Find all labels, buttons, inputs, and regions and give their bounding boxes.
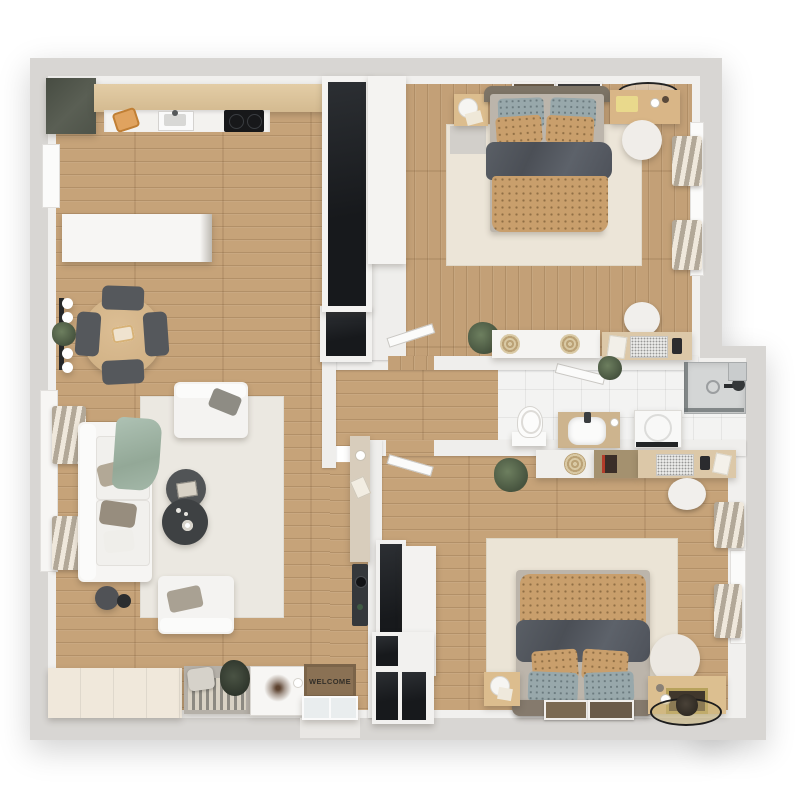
bedroom2-red-book [602, 455, 617, 473]
intercom-led [357, 604, 363, 610]
toilet-seat [521, 410, 541, 434]
bath-faucet [584, 412, 591, 423]
entry-art-splatter [264, 674, 292, 702]
bedroom1-jute-decor-1 [500, 334, 520, 354]
wall-plant [52, 322, 76, 346]
washer-drum [644, 414, 672, 442]
bedroom2-card [497, 687, 513, 701]
radiator-right-2 [672, 220, 702, 270]
dining-chair-left [74, 311, 101, 357]
bedroom1-jute-decor-2 [560, 334, 580, 354]
bed1-blanket [492, 176, 608, 232]
entry-art-dot [293, 678, 303, 688]
tv-sideboard [62, 214, 212, 262]
coffee-table-dot-1 [176, 508, 181, 513]
vanity-tray [616, 96, 638, 112]
bedroom1-laptop [630, 336, 668, 358]
window-left-kitchen [42, 144, 60, 208]
towel-rail [636, 442, 678, 447]
floor-lamp-side-table [117, 594, 131, 608]
dining-chair-top [102, 285, 145, 310]
entry-platform [48, 668, 182, 718]
coffee-table-dot-2 [184, 512, 188, 516]
white-cabinet-top [368, 76, 406, 264]
bedroom2-laptop [656, 454, 694, 476]
radiator-right-3 [714, 502, 744, 548]
sofa-pillow-2 [99, 500, 138, 529]
wall-lamp-bulb-1 [62, 298, 73, 309]
bedroom2-tray-plant [676, 694, 698, 716]
doorway-bedroom-1 [388, 356, 434, 370]
sofa-back [80, 424, 96, 580]
shower-drain [706, 380, 720, 394]
bath-soap [610, 418, 619, 427]
wall-lamp-bulb-3 [62, 348, 73, 359]
bedroom1-office-chair [624, 302, 660, 336]
doorway-bedroom-2 [386, 440, 434, 456]
wall-hall-west [322, 356, 336, 468]
entry-plant [220, 660, 250, 696]
intercom-panel [352, 564, 368, 626]
entry-closet-door-3 [402, 672, 426, 720]
wall-bedroom1-west [368, 262, 406, 360]
outer-wall-right-lower [746, 346, 766, 740]
floor-lamp-shade [95, 586, 119, 610]
entry-doorway [300, 718, 360, 738]
bed1-pillow-tan-right [545, 115, 594, 145]
shower-corner-shelf [728, 362, 747, 381]
armchair-bottom-back [160, 618, 232, 632]
vanity-jar-2 [662, 96, 669, 103]
sink-faucet [172, 110, 178, 116]
bedroom1-phone [672, 338, 682, 354]
bedroom2-office-chair [668, 478, 706, 510]
bedroom2-frame-2 [588, 700, 634, 720]
cooktop-burner-left [229, 114, 244, 129]
entry-closet-door-2 [376, 672, 398, 720]
entry-bench-pillow [187, 666, 216, 691]
shower-glass-bottom [684, 408, 744, 412]
bedroom1-stool [622, 120, 662, 160]
intercom-lens [355, 576, 367, 588]
entry-glass-door-divider [329, 698, 331, 718]
bed1-duvet [486, 142, 612, 180]
bed2-pillow-teal-right [583, 671, 634, 703]
entry-closet-door-1 [376, 636, 398, 666]
coffee-table-cup [182, 520, 193, 531]
kitchen-corner-cabinet [46, 78, 96, 134]
shower-glass-left [684, 362, 688, 412]
sofa-pillow-3 [103, 528, 135, 553]
bedroom2-console-dot-1 [656, 684, 664, 692]
radiator-right-4 [714, 584, 742, 638]
floor-hallway [336, 368, 498, 446]
vanity-jar-1 [650, 98, 660, 108]
radiator-right-1 [672, 136, 702, 186]
wall-lamp-bulb-4 [62, 362, 73, 373]
black-wardrobe [328, 82, 366, 306]
welcome-mat: WELCOME [304, 664, 356, 698]
bed2-pillow-teal-left [527, 671, 578, 703]
bedroom2-plant [494, 458, 528, 492]
bedroom2-phone [700, 456, 710, 470]
dining-chair-bottom [101, 359, 144, 385]
floor-plan-canvas: WELCOME [0, 0, 800, 800]
bedroom1-gray-mat [450, 126, 486, 154]
bed1-pillow-tan-left [495, 114, 543, 145]
cooktop-burner-right [247, 114, 262, 129]
dining-chair-right [142, 311, 169, 357]
shelf-item-cup [355, 450, 366, 461]
bedroom2-frame-1 [544, 700, 588, 720]
bathroom-plant [598, 356, 622, 380]
bedroom2-jute-decor [564, 453, 586, 475]
coffee-table-magazine [176, 481, 198, 499]
wall-niche-opening [326, 312, 366, 356]
